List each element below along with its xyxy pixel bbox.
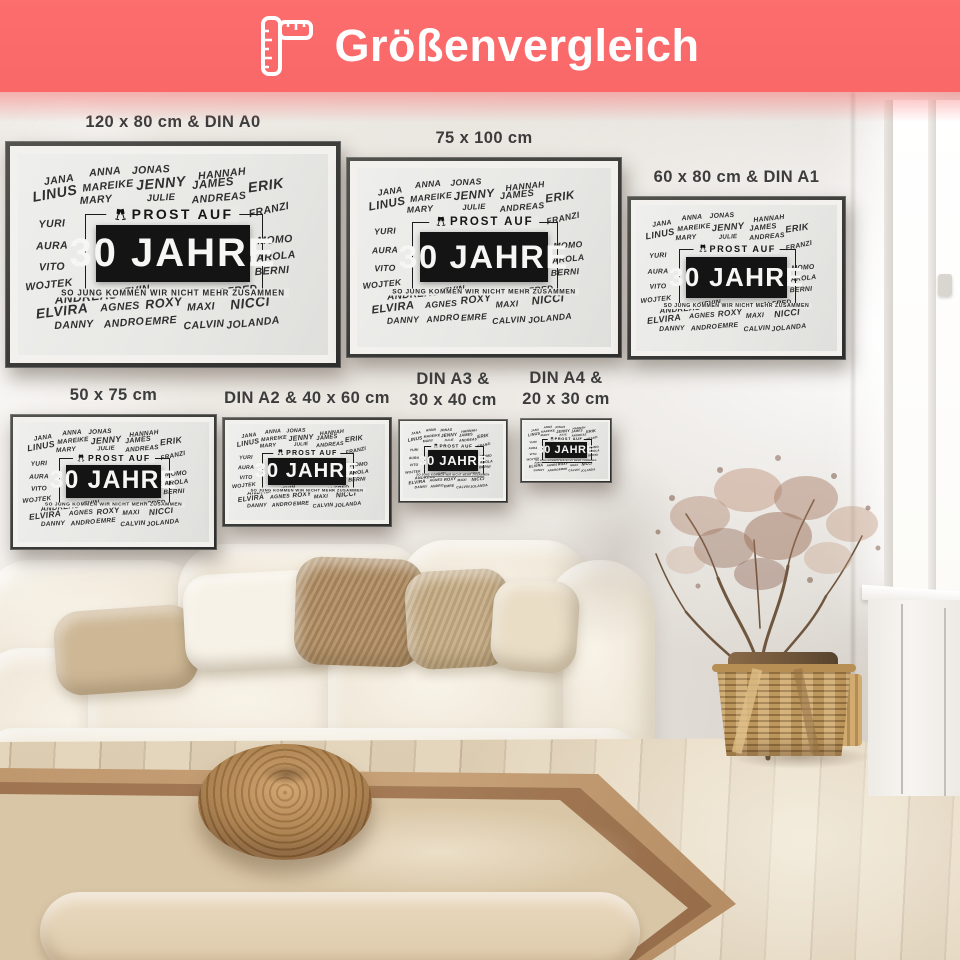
guest-name: ANDRO [691,323,718,332]
guest-name: LINUS [645,227,676,242]
guest-name: VITO [374,263,396,274]
guest-name: VITO [31,485,47,493]
guest-name: MARY [79,193,112,207]
guest-name: JAMES [499,188,534,203]
poster-din-a4-20x30: JANAANNAJONASHANNAHLINUSMAREIKEJENNYJAME… [520,418,612,483]
poster-main-title: 30 JAHRE [50,467,178,495]
guest-name: EMRE [444,483,455,488]
poster-mat: JANAANNAJONASHANNAHLINUSMAREIKEJENNYJAME… [350,161,617,353]
guest-name: CALVIN [312,502,333,509]
guest-name: VITO [409,463,418,467]
guest-name: ERIK [785,222,810,235]
poster-title-box: 30 JAHRE [428,450,478,471]
guest-name: ERIK [545,188,576,205]
guest-name: ANDREAS [499,200,545,214]
size-label-50x75: 50 x 75 cm [10,385,217,406]
guest-name: ROXY [718,307,743,319]
guest-name: JOLANDA [334,500,362,509]
panel-seam [944,608,946,796]
guest-name: EMRE [558,467,567,472]
guest-name: VITO [39,260,65,273]
guest-name: ANDRO [70,518,95,527]
poster-top-label-text: PROST AUF [439,444,472,449]
guest-name: JONAS [450,176,482,188]
guest-name: ANDREAS [192,190,248,207]
guest-name: AGNES [69,509,94,518]
guest-name: JOLANDA [580,467,595,473]
size-label-din-a3-30x40: DIN A3 &30 x 40 cm [398,369,508,411]
guest-name: AURA [372,245,399,256]
guest-name: AURA [36,240,68,253]
size-label-line: DIN A2 & 40 x 60 cm [222,388,392,409]
guest-name: AURA [29,473,49,481]
poster-mat: JANAANNAJONASHANNAHLINUSMAREIKEJENNYJAME… [400,421,506,501]
guest-name: DANNY [386,314,419,326]
poster-title-box: 30 JAHRE [268,458,346,485]
size-label-line: 75 x 100 cm [346,128,622,149]
guest-name: YURI [374,225,396,236]
champagne-glasses-icon [434,216,447,227]
poster-top-label: PROST AUF [106,206,239,222]
champagne-glasses-icon [276,449,284,456]
poster-50x75: JANAANNAJONASHANNAHLINUSMAREIKEJENNYJAME… [10,414,217,550]
guest-name: LINUS [26,439,55,454]
product-size-comparison-image: Größenvergleich [0,0,960,960]
guest-name: JAMES [749,221,777,233]
size-label-60x80-din-a1: 60 x 80 cm & DIN A1 [627,167,846,188]
guest-name: CALVIN [743,325,770,334]
guest-name: JULIE [146,192,175,204]
guest-name: ERIK [344,434,363,444]
poster-top-label-text: PROST AUF [555,437,583,441]
guest-name: YURI [530,440,537,444]
guest-name: DANNY [659,325,685,333]
guest-name: MAXI [122,509,140,517]
poster-main-title: 30 JAHRE [538,444,595,456]
guest-name: CALVIN [569,468,580,473]
poster-main-title: 30 JAHRE [255,460,360,483]
guest-name: ANNA [425,428,436,433]
poster-title-box: 30 JAHRE [96,225,251,281]
header-banner: Größenvergleich [0,0,960,92]
ruler-icon [260,15,314,77]
poster-top-label-text: PROST AUF [450,216,534,228]
poster-top-label-text: PROST AUF [710,244,776,254]
guest-name: MAXI [570,463,578,467]
champagne-glasses-icon [697,244,707,253]
guest-name: JOLANDA [470,484,488,490]
guest-name: ANDRO [547,467,558,472]
guest-name: YURI [239,454,253,461]
poster-top-label: PROST AUF [693,244,780,254]
guest-name: JENNY [453,187,495,204]
guest-name: MARY [407,203,434,215]
guest-name: JENNY [712,220,745,233]
size-label-line: 50 x 75 cm [10,385,217,406]
guest-name: NICCI [531,293,565,308]
poster-mat: JANAANNAJONASHANNAHLINUSMAREIKEJENNYJAME… [10,146,335,362]
poster-subtitle: SO JUNG KOMMEN WIR NICHT MEHR ZUSAMMEN [534,460,597,462]
poster-mat: JANAANNAJONASHANNAHLINUSMAREIKEJENNYJAME… [225,420,390,525]
guest-name: MARY [422,438,433,443]
poster-subtitle: SO JUNG KOMMEN WIR NICHT MEHR ZUSAMMEN [415,474,491,477]
guest-name: DANNY [414,485,427,490]
poster-top-label-text: PROST AUF [286,449,337,457]
guest-name: VITO [530,452,537,456]
poster-print: JANAANNAJONASHANNAHLINUSMAREIKEJENNYJAME… [524,422,608,479]
poster-75x100: JANAANNAJONASHANNAHLINUSMAREIKEJENNYJAME… [346,157,622,358]
size-label-line: 30 x 40 cm [398,390,508,411]
pouf-dimple [252,760,322,788]
guest-name: DANNY [40,520,65,528]
guest-name: LINUS [528,430,541,437]
guest-name: JOLANDA [771,323,806,334]
window-handle [938,274,952,296]
poster-mat: JANAANNAJONASHANNAHLINUSMAREIKEJENNYJAME… [13,417,213,546]
poster-subtitle: SO JUNG KOMMEN WIR NICHT MEHR ZUSAMMEN [57,288,289,297]
guest-name: VITO [239,475,252,481]
guest-name: JULIE [444,438,454,442]
panel-seam [901,604,903,794]
poster-top-label-text: PROST AUF [132,206,234,222]
guest-name: MAXI [314,494,328,501]
poster-top-label: PROST AUF [431,444,475,449]
poster-main-title: 30 JAHRE [69,231,276,276]
guest-name: ANDRO [271,501,292,509]
guest-name: MAREIKE [423,433,440,439]
guest-name: MAREIKE [409,189,452,203]
size-label-75x100: 75 x 100 cm [346,128,622,149]
poster-print: JANAANNAJONASHANNAHLINUSMAREIKEJENNYJAME… [18,154,327,354]
guest-name: EMRE [460,311,487,323]
poster-title-box: 30 JAHRE [686,257,787,298]
guest-name: JULIE [559,433,567,436]
poster-print: JANAANNAJONASHANNAHLINUSMAREIKEJENNYJAME… [357,168,611,347]
guest-name: ANNA [415,178,442,190]
guest-name: LINUS [236,437,260,449]
guest-name: VITO [649,283,666,291]
guest-name: AGNES [689,312,715,321]
guest-name: LINUS [368,194,407,213]
guest-name: DANNY [534,468,545,473]
poster-mat: JANAANNAJONASHANNAHLINUSMAREIKEJENNYJAME… [631,200,843,357]
guest-name: AGNES [270,493,290,500]
poster-din-a3-30x40: JANAANNAJONASHANNAHLINUSMAREIKEJENNYJAME… [398,419,508,503]
guest-name: AURA [408,456,419,460]
living-room-photo: 120 x 80 cm & DIN A0JANAANNAJONASHANNAHL… [0,92,960,960]
size-label-line: 20 x 30 cm [520,389,612,410]
poster-120x80-din-a0: JANAANNAJONASHANNAHLINUSMAREIKEJENNYJAME… [5,141,341,368]
guest-name: JULIE [462,202,486,212]
guest-name: DANNY [54,318,94,332]
guest-name: YURI [31,460,48,468]
guest-name: ANDRO [103,315,145,330]
guest-name: DANNY [247,502,267,509]
poster-subtitle: SO JUNG KOMMEN WIR NICHT MEHR ZUSAMMEN [389,288,579,295]
guest-name: ELVIRA [646,312,681,326]
guest-name: YURI [649,252,667,260]
guest-name: JOLANDA [528,311,573,326]
guest-name: ROXY [460,293,492,307]
guest-name: EMRE [292,500,309,507]
size-label-line: DIN A3 & [398,369,508,390]
poster-mat: JANAANNAJONASHANNAHLINUSMAREIKEJENNYJAME… [522,420,610,481]
poster-title-box: 30 JAHRE [66,465,161,498]
guest-name: ERIK [586,428,596,434]
guest-name: JULIE [719,233,738,241]
guest-name: AGNES [429,478,442,483]
poster-print: JANAANNAJONASHANNAHLINUSMAREIKEJENNYJAME… [18,422,209,542]
guest-name: AGNES [424,298,457,310]
guest-name: JENNY [90,434,122,447]
guest-name: JONAS [440,427,453,432]
guest-name: LINUS [32,183,79,207]
guest-name: ANDRO [430,484,444,489]
size-label-din-a4-20x30: DIN A4 &20 x 30 cm [520,368,612,410]
guest-name: MAXI [745,312,764,320]
guest-name: MAXI [457,478,466,482]
pillow-beige [52,603,200,697]
poster-title-box: 30 JAHRE [420,232,547,282]
poster-print: JANAANNAJONASHANNAHLINUSMAREIKEJENNYJAME… [229,424,385,520]
guest-name: MAXI [187,300,216,313]
poster-subtitle: SO JUNG KOMMEN WIR NICHT MEHR ZUSAMMEN [249,488,366,493]
poster-subtitle: SO JUNG KOMMEN WIR NICHT MEHR ZUSAMMEN [661,303,812,309]
poster-din-a2-40x60: JANAANNAJONASHANNAHLINUSMAREIKEJENNYJAME… [222,417,392,527]
champagne-glasses-icon [76,454,86,462]
poster-top-label: PROST AUF [273,449,340,457]
guest-name: JULIE [97,445,115,452]
guest-name: YURI [39,218,66,231]
guest-name: AURA [647,268,668,276]
guest-name: ERIK [477,432,489,439]
guest-name: JOLANDA [226,314,281,332]
guest-name: ERIK [247,176,285,197]
poster-print: JANAANNAJONASHANNAHLINUSMAREIKEJENNYJAME… [636,205,838,352]
guest-name: JULIE [293,442,308,448]
guest-name: JAMES [125,435,152,446]
size-label-line: 60 x 80 cm & DIN A1 [627,167,846,188]
guest-name: MAREIKE [677,223,711,233]
poster-print: JANAANNAJONASHANNAHLINUSMAREIKEJENNYJAME… [403,424,504,499]
basket-rim [712,664,856,672]
throw-blanket [40,892,640,960]
size-label-din-a2-40x60: DIN A2 & 40 x 60 cm [222,388,392,409]
guest-name: YURI [409,448,418,452]
guest-name: AGNES [100,299,140,314]
guest-name: JOLANDA [146,517,180,527]
guest-name: ERIK [159,435,182,448]
guest-name: JONAS [710,212,735,220]
guest-name: AURA [529,446,538,450]
size-label-line: DIN A4 & [520,368,612,389]
guest-name: EMRE [718,322,739,330]
guest-name: EMRE [96,517,116,525]
window-mullion [928,100,936,602]
guest-name: MAXI [495,298,518,309]
guest-name: AURA [238,465,254,472]
guest-name: CALVIN [456,485,470,490]
header-glow [0,92,960,122]
poster-top-label-text: PROST AUF [88,453,151,463]
guest-name: CALVIN [492,314,526,326]
poster-60x80-din-a1: JANAANNAJONASHANNAHLINUSMAREIKEJENNYJAME… [627,196,846,360]
guest-name: LINUS [407,435,422,442]
poster-main-title: 30 JAHRE [669,262,804,293]
guest-name: ELVIRA [370,299,414,316]
poster-main-title: 30 JAHRE [419,453,487,468]
guest-name: CALVIN [120,519,146,528]
poster-top-label: PROST AUF [548,437,584,441]
poster-top-label: PROST AUF [429,216,539,228]
champagne-glasses-icon [549,437,553,441]
page-title: Größenvergleich [334,20,699,72]
guest-name: ANDREAS [125,444,159,454]
poster-top-label: PROST AUF [72,453,154,463]
guest-name: EMRE [144,313,177,327]
champagne-glasses-icon [113,208,129,221]
guest-name: ANDRO [426,312,460,325]
poster-subtitle: SO JUNG KOMMEN WIR NICHT MEHR ZUSAMMEN [42,502,184,507]
guest-name: ANDREAS [459,437,477,443]
guest-name: MARY [675,234,697,242]
guest-name: ANNA [681,214,702,223]
poster-main-title: 30 JAHRE [399,238,569,276]
guest-name: CALVIN [183,317,225,332]
champagne-glasses-icon [433,444,438,448]
guest-name: ANDREAS [749,232,785,242]
guest-name: ANNA [88,165,121,180]
poster-title-box: 30 JAHRE [545,442,587,458]
